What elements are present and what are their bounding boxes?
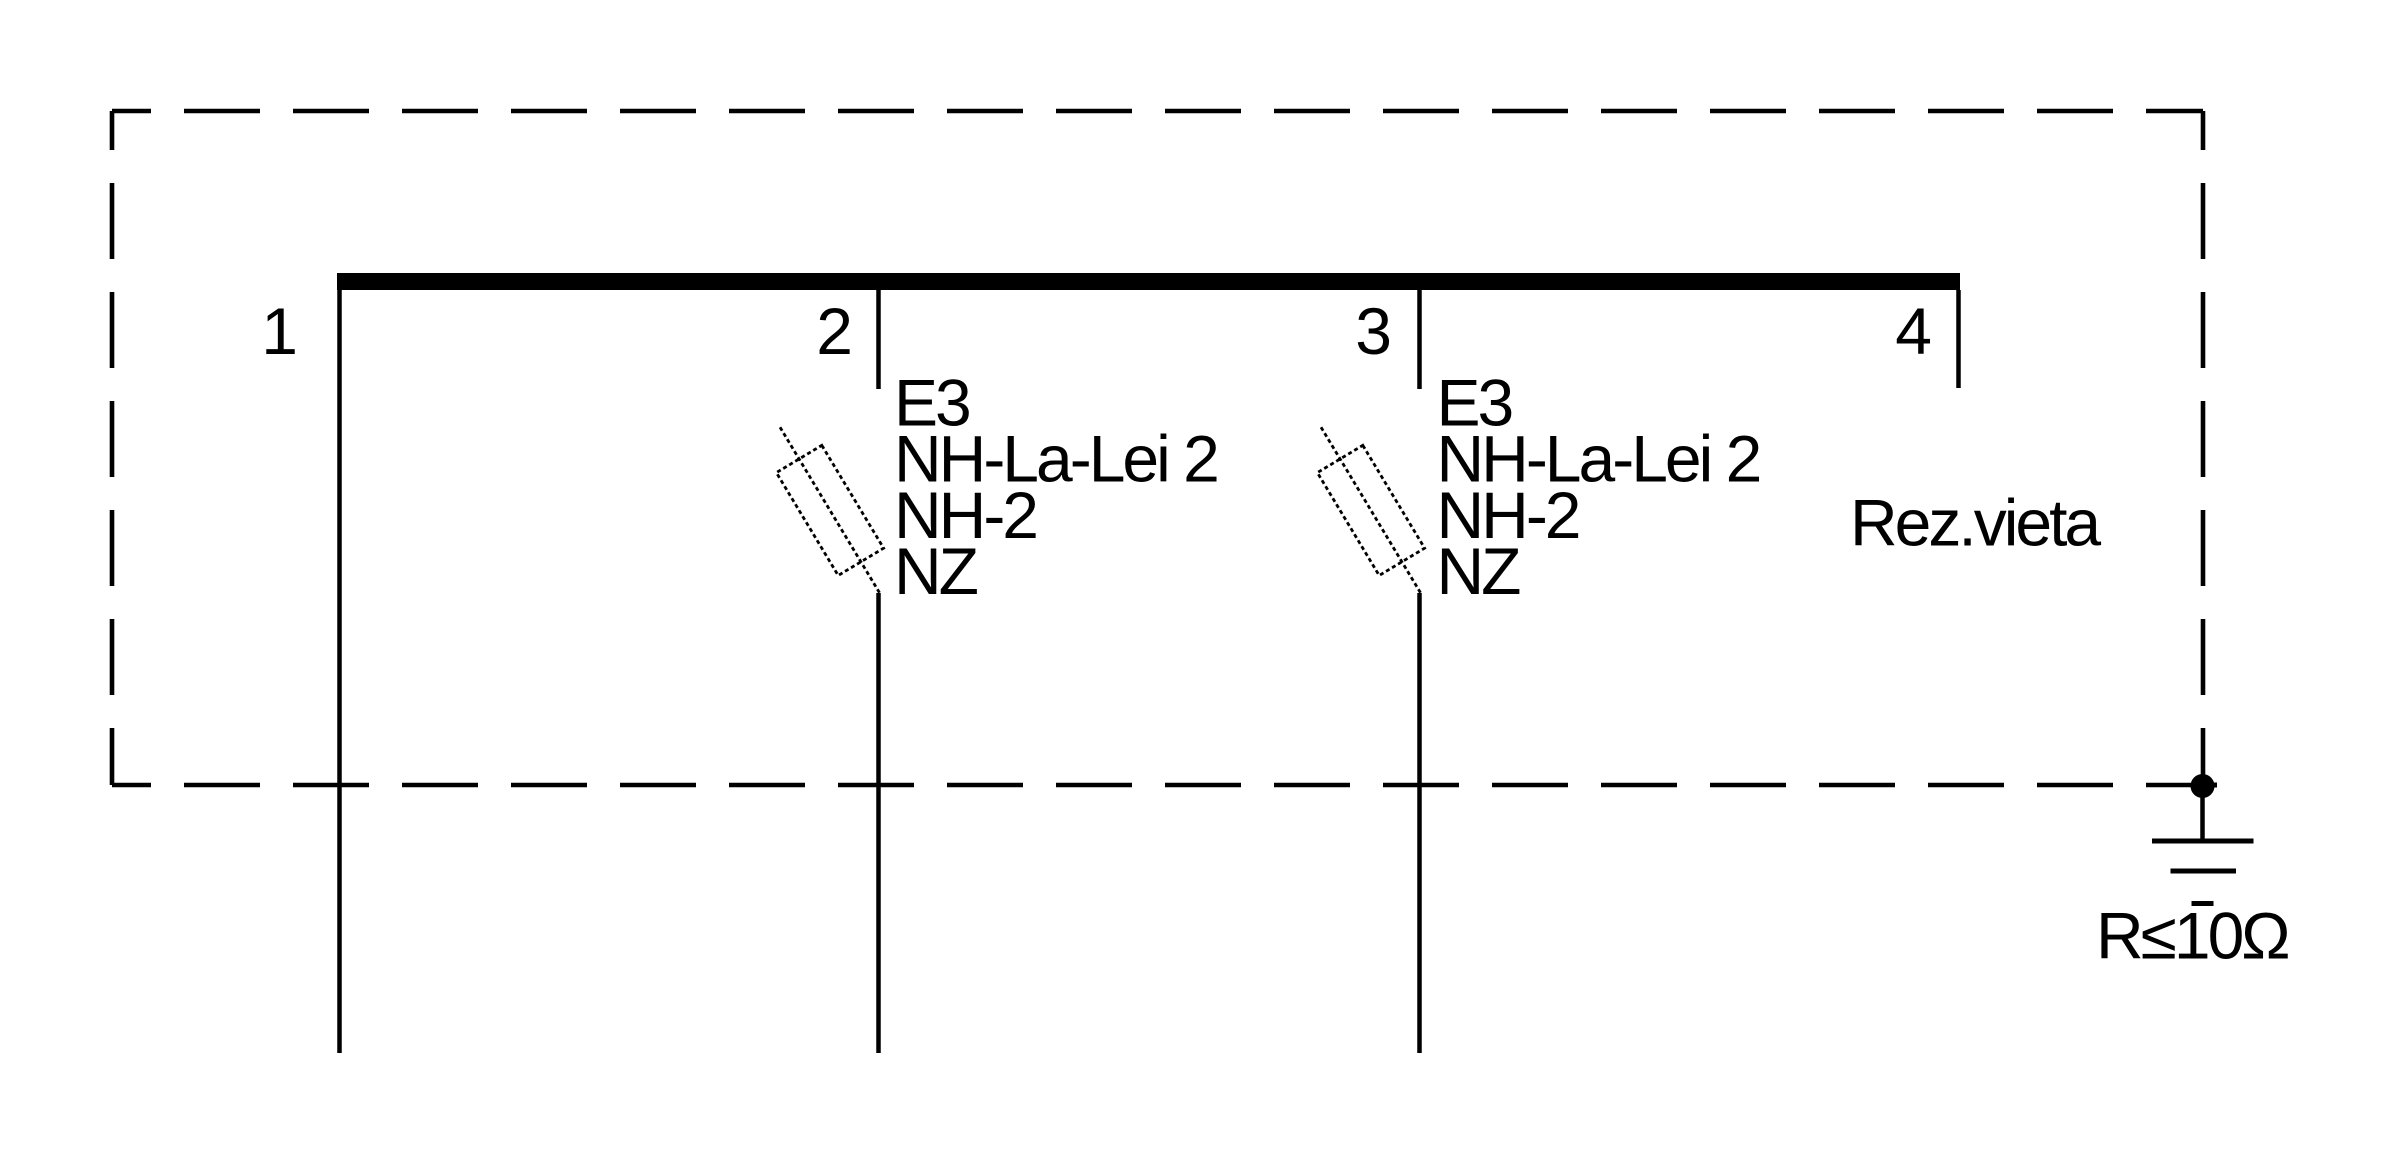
- svg-text:Rez.vieta: Rez.vieta: [1850, 486, 2101, 560]
- svg-text:2: 2: [816, 294, 853, 368]
- svg-text:3: 3: [1355, 294, 1392, 368]
- svg-text:R≤10Ω: R≤10Ω: [2096, 899, 2288, 973]
- svg-text:NZ: NZ: [1437, 534, 1521, 608]
- svg-text:1: 1: [261, 294, 298, 368]
- svg-text:NZ: NZ: [894, 534, 978, 608]
- svg-text:4: 4: [1895, 294, 1932, 368]
